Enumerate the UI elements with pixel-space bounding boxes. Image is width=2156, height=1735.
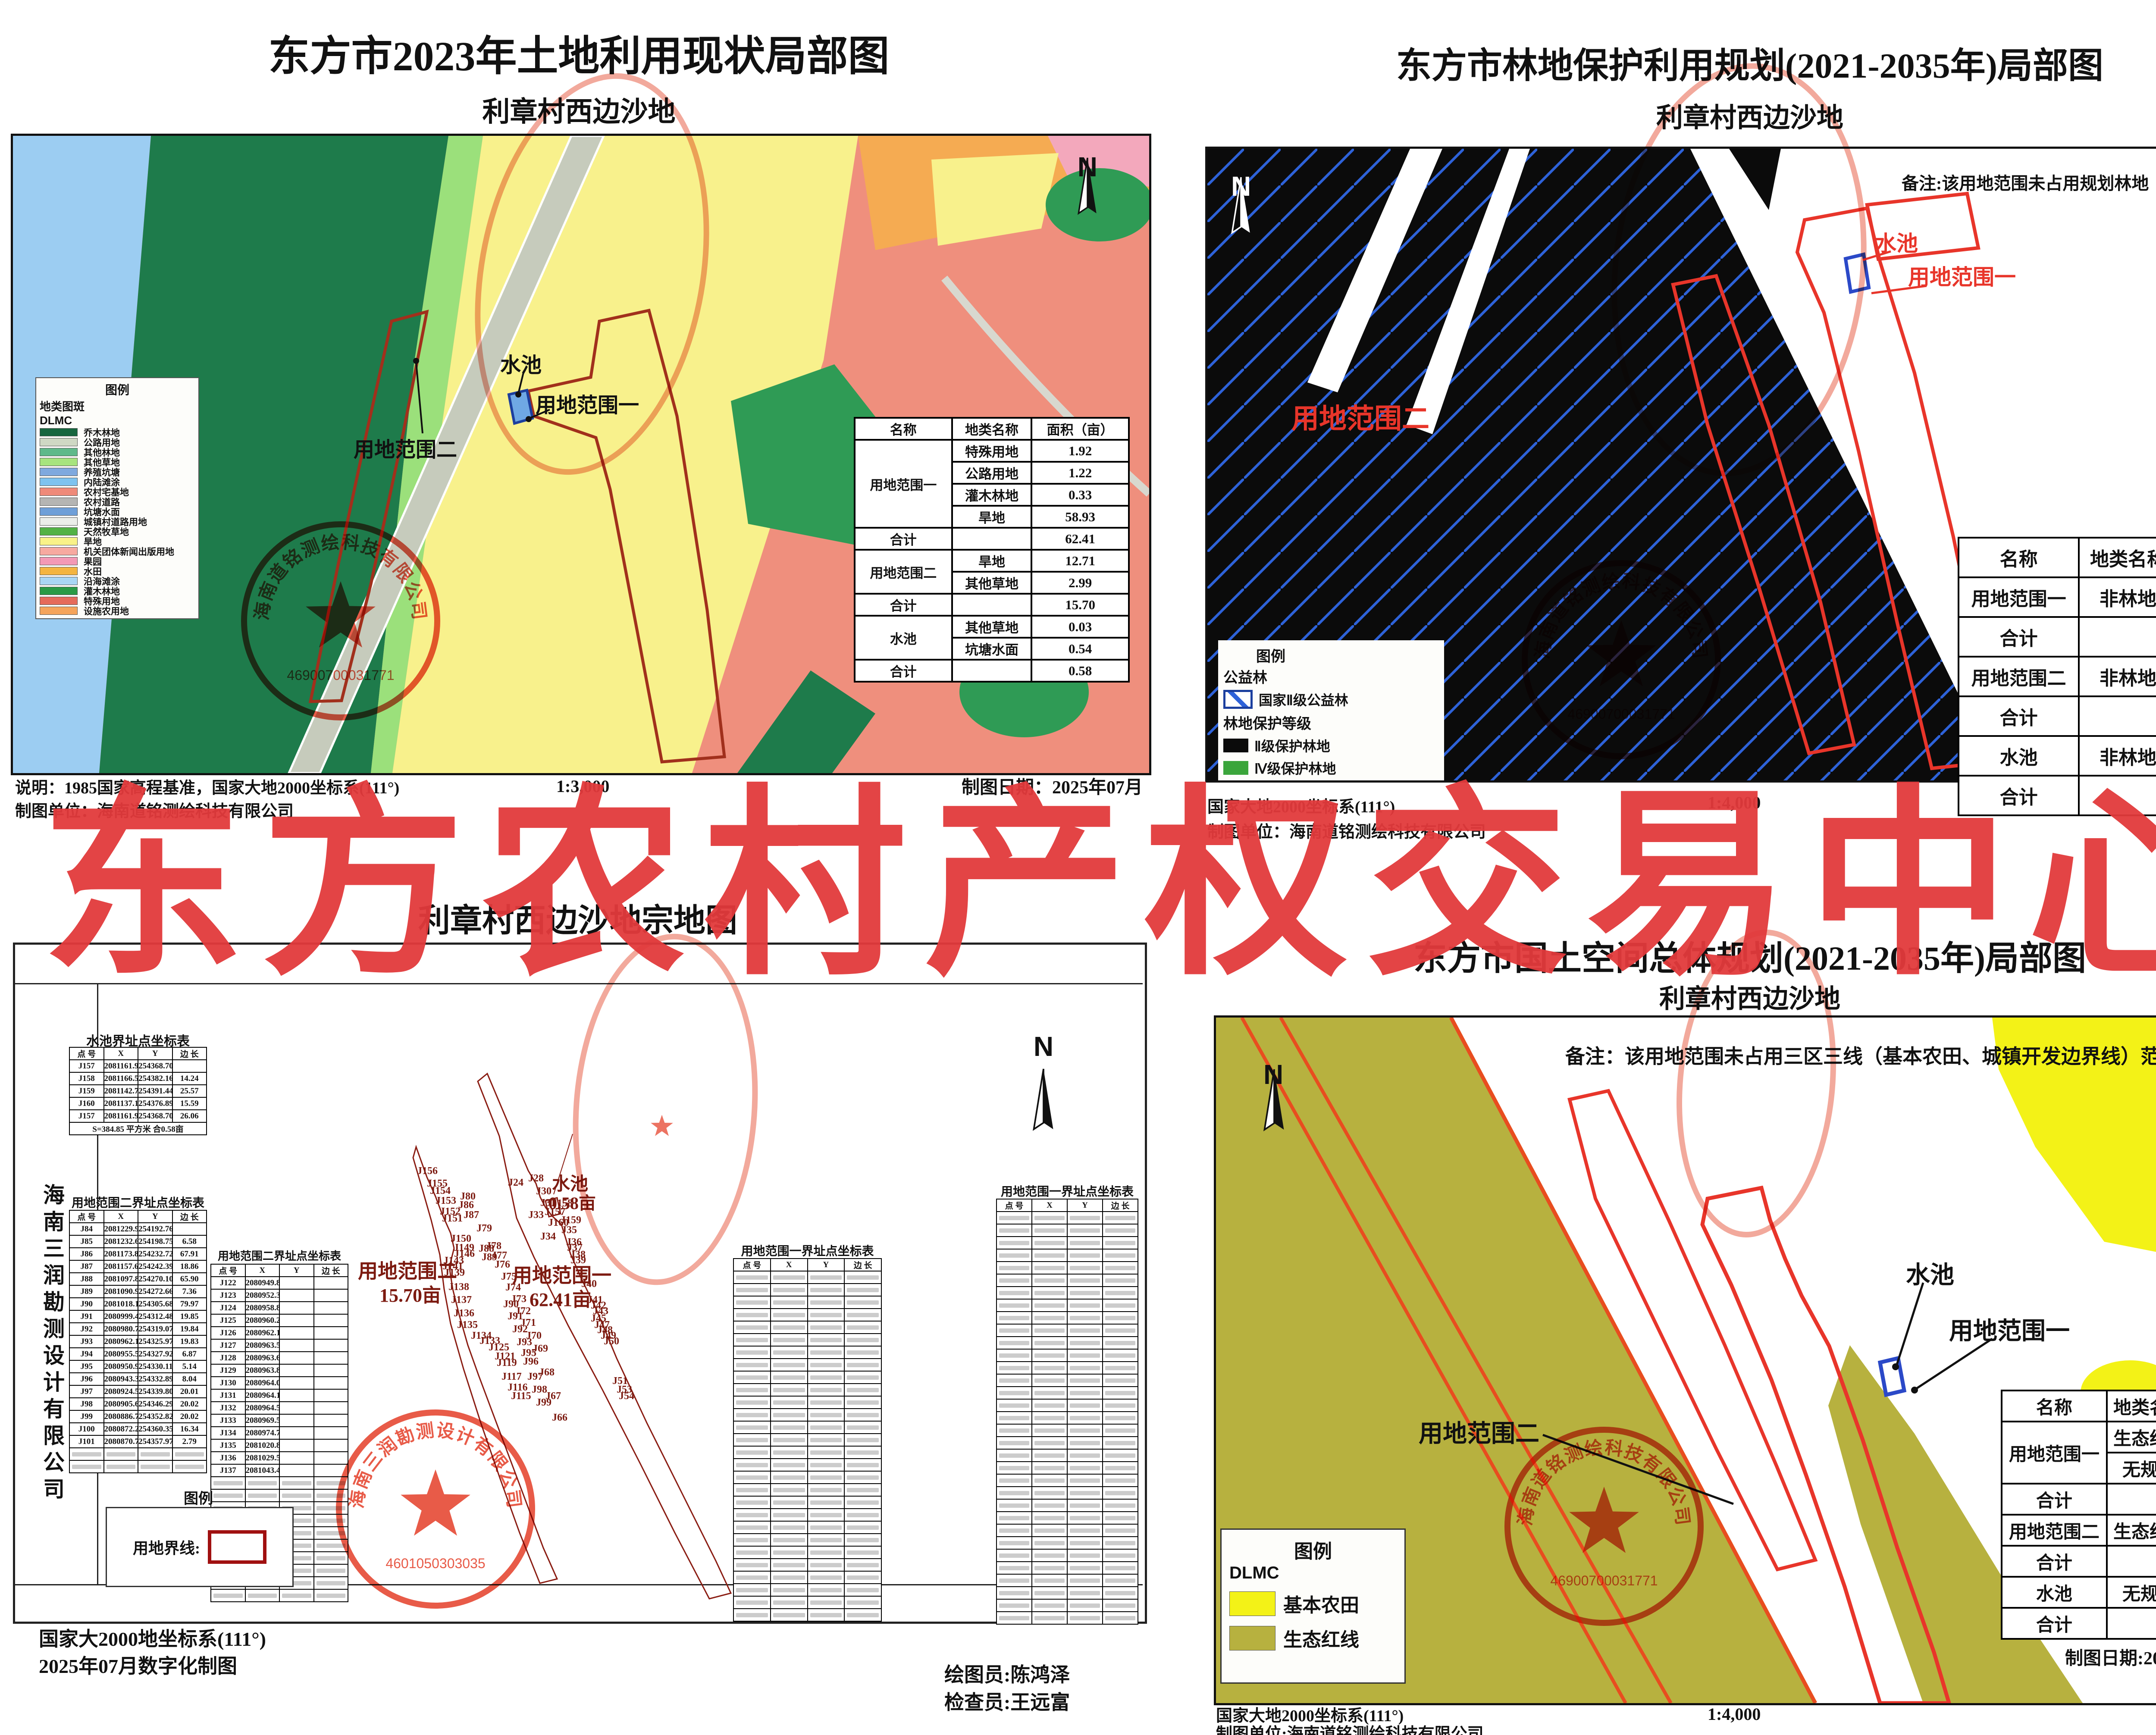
table-row: J982080905.65254346.2920.02 bbox=[69, 1398, 207, 1410]
legend-group-gongyilin: 公益林 bbox=[1223, 666, 1439, 687]
stamp-number: 46900700031771 bbox=[1567, 706, 1675, 722]
cell bbox=[997, 1224, 1032, 1237]
q4-legend: 图例 DLMC 基本农田 生态红线 bbox=[1220, 1528, 1406, 1684]
cell bbox=[844, 1459, 881, 1471]
q1-area-table-wrap: 名称地类名称面积（亩）用地范围一特殊用地1.92公路用地1.22灌木林地0.33… bbox=[854, 417, 1130, 683]
table-row: J972080924.59254339.8020.01 bbox=[69, 1385, 207, 1398]
daoming-company-stamp: 海南道铭测绘科技有限公司 46900700031771 bbox=[1503, 1425, 1705, 1628]
cell: J134 bbox=[211, 1427, 245, 1439]
cell bbox=[1032, 1524, 1067, 1537]
legend-item: 机关团体新闻出版用地 bbox=[40, 546, 195, 556]
legend-title: 图例 bbox=[1223, 645, 1318, 666]
cell: 254376.89 bbox=[138, 1097, 172, 1110]
table-row bbox=[733, 1484, 881, 1496]
cell bbox=[733, 1371, 771, 1384]
cell bbox=[808, 1409, 845, 1421]
cell bbox=[733, 1559, 771, 1571]
cell: J100 bbox=[69, 1423, 104, 1435]
daoming-company-stamp: 海南道铭测绘科技有限公司 46900700031771 bbox=[239, 520, 442, 722]
cell bbox=[1032, 1312, 1067, 1324]
cell: J95 bbox=[69, 1360, 104, 1373]
cell bbox=[1032, 1262, 1067, 1274]
table-row: J1572081161.91254368.70 bbox=[69, 1060, 207, 1072]
cell bbox=[771, 1321, 808, 1334]
legend-item: 天然牧草地 bbox=[40, 526, 195, 536]
table-row: J852081232.62254198.756.58 bbox=[69, 1235, 207, 1248]
vertex-label: J92 bbox=[512, 1324, 528, 1335]
cell bbox=[1103, 1549, 1138, 1562]
vertex-label: J98 bbox=[532, 1384, 547, 1396]
cell: J98 bbox=[69, 1398, 104, 1410]
color-swatch bbox=[40, 557, 78, 565]
cell: J132 bbox=[211, 1402, 245, 1414]
cell bbox=[1103, 1299, 1138, 1312]
table-row bbox=[997, 1524, 1138, 1537]
col-header: 点 号 bbox=[211, 1264, 245, 1277]
cell bbox=[1067, 1312, 1103, 1324]
table-row: J1012080870.78254357.972.79 bbox=[69, 1435, 207, 1448]
table-row: J942080955.57254327.926.87 bbox=[69, 1348, 207, 1360]
cell: J122 bbox=[211, 1277, 245, 1289]
cell bbox=[844, 1384, 881, 1396]
cell bbox=[808, 1359, 845, 1371]
q1-legend: 图例 地类图斑 DLMC 乔木林地 公路用地 其他林地 其他草地 养殖坑塘 内陆… bbox=[35, 377, 199, 619]
cell bbox=[1103, 1437, 1138, 1449]
cell bbox=[733, 1584, 771, 1596]
vertex-label: J69 bbox=[533, 1343, 548, 1355]
cell: 2080969.52 bbox=[245, 1414, 280, 1427]
cell: 254270.10 bbox=[138, 1273, 172, 1285]
q2-scope1-label: 用地范围一 bbox=[1908, 260, 2016, 291]
q2-title: 东方市林地保护利用规划(2021-2035年)局部图 bbox=[1186, 37, 2156, 88]
cell: J94 bbox=[69, 1348, 104, 1360]
col-header: Y bbox=[138, 1210, 172, 1223]
cell bbox=[808, 1271, 845, 1284]
cell bbox=[1103, 1337, 1138, 1349]
cell bbox=[1103, 1287, 1138, 1299]
q4-north-arrow: N bbox=[1263, 1061, 1283, 1088]
cell: 2081232.62 bbox=[104, 1235, 138, 1248]
table-row: J902081018.11254305.6879.97 bbox=[69, 1298, 207, 1310]
table-row bbox=[997, 1599, 1138, 1612]
table-row bbox=[997, 1224, 1138, 1237]
cell bbox=[1067, 1349, 1103, 1362]
cell bbox=[1067, 1449, 1103, 1462]
table-row: 合计15.7 bbox=[2002, 1546, 2156, 1577]
col-header: X bbox=[1032, 1199, 1067, 1212]
cell bbox=[1032, 1512, 1067, 1524]
table-row bbox=[733, 1396, 881, 1409]
table-row bbox=[733, 1384, 881, 1396]
cell bbox=[997, 1212, 1032, 1224]
table-row bbox=[997, 1474, 1138, 1487]
col-header: 边 长 bbox=[172, 1047, 207, 1060]
cell bbox=[1032, 1362, 1067, 1374]
north-arrow-icon bbox=[1231, 172, 1251, 241]
cell: J91 bbox=[69, 1310, 104, 1323]
cell: 5.14 bbox=[172, 1360, 207, 1373]
cell: 2080886.73 bbox=[104, 1410, 138, 1423]
cell bbox=[1103, 1412, 1138, 1424]
col-header: X bbox=[771, 1259, 808, 1271]
table-row bbox=[733, 1409, 881, 1421]
cell bbox=[771, 1359, 808, 1371]
vertex-label: J135 bbox=[457, 1319, 478, 1331]
table-row bbox=[733, 1296, 881, 1309]
cell: J129 bbox=[211, 1364, 245, 1377]
table-row bbox=[997, 1249, 1138, 1262]
cell: J99 bbox=[69, 1410, 104, 1423]
cell: 2081161.91 bbox=[104, 1110, 138, 1122]
cell: 2080964.06 bbox=[245, 1377, 280, 1389]
cell bbox=[997, 1387, 1032, 1399]
scope1a-table-wrap: 点 号XY边 长 bbox=[733, 1258, 882, 1622]
cell bbox=[771, 1471, 808, 1484]
cell bbox=[808, 1509, 845, 1521]
cell: 12.71 bbox=[1031, 550, 1129, 572]
col-header: X bbox=[104, 1047, 138, 1060]
cell: 254232.72 bbox=[138, 1248, 172, 1260]
black-swatch bbox=[1223, 739, 1248, 752]
cell bbox=[771, 1484, 808, 1496]
table-row: 合计0.58 bbox=[2002, 1608, 2156, 1639]
cell bbox=[1067, 1374, 1103, 1387]
cell bbox=[1067, 1237, 1103, 1249]
cell bbox=[844, 1446, 881, 1459]
cell bbox=[1032, 1537, 1067, 1549]
table-row bbox=[997, 1412, 1138, 1424]
cell: 254332.89 bbox=[138, 1373, 172, 1385]
cell bbox=[1032, 1574, 1067, 1587]
table-row bbox=[733, 1271, 881, 1284]
table-row: 合计0.58 bbox=[855, 660, 1129, 682]
cell bbox=[808, 1434, 845, 1446]
cell bbox=[771, 1384, 808, 1396]
cell bbox=[1103, 1424, 1138, 1437]
cell bbox=[1103, 1362, 1138, 1374]
table-row bbox=[997, 1449, 1138, 1462]
cell: 无规划 bbox=[2107, 1453, 2156, 1484]
cell bbox=[844, 1346, 881, 1359]
cell bbox=[733, 1521, 771, 1534]
cell: 26.06 bbox=[172, 1110, 207, 1122]
cell bbox=[1103, 1562, 1138, 1574]
col-header: 点 号 bbox=[69, 1210, 104, 1223]
cell: 2081043.43 bbox=[245, 1464, 280, 1477]
stamp-number: 46900700031771 bbox=[1550, 1573, 1658, 1588]
cell: J123 bbox=[211, 1289, 245, 1302]
cell: 254346.29 bbox=[138, 1398, 172, 1410]
cell bbox=[2107, 1608, 2156, 1639]
cell: J96 bbox=[69, 1373, 104, 1385]
cell bbox=[733, 1346, 771, 1359]
cell bbox=[952, 594, 1032, 616]
cell: 水池 bbox=[2002, 1577, 2107, 1608]
table-row bbox=[733, 1546, 881, 1559]
vertex-label: J87 bbox=[464, 1209, 479, 1221]
cell bbox=[997, 1249, 1032, 1262]
cell: J90 bbox=[69, 1298, 104, 1310]
north-arrow-icon bbox=[1033, 1060, 1054, 1142]
cell: 2080964.13 bbox=[245, 1389, 280, 1402]
cell: J87 bbox=[69, 1260, 104, 1273]
color-swatch bbox=[40, 438, 78, 446]
cell bbox=[844, 1509, 881, 1521]
cell: 15.59 bbox=[172, 1097, 207, 1110]
table-row bbox=[997, 1287, 1138, 1299]
cell: 0.03 bbox=[1031, 616, 1129, 638]
cell: 公路用地 bbox=[952, 462, 1032, 484]
cell: 2081157.63 bbox=[104, 1260, 138, 1273]
cell bbox=[1067, 1324, 1103, 1337]
cell: 254272.66 bbox=[138, 1285, 172, 1298]
cell bbox=[1032, 1387, 1067, 1399]
cell bbox=[808, 1296, 845, 1309]
cell bbox=[808, 1584, 845, 1596]
cell bbox=[771, 1559, 808, 1571]
cell bbox=[1067, 1612, 1103, 1624]
cell bbox=[1067, 1537, 1103, 1549]
table-row: J992080886.73254352.8220.02 bbox=[69, 1410, 207, 1423]
scope1b-table-wrap: 点 号XY边 长 bbox=[996, 1199, 1138, 1625]
cell: 62.41 bbox=[1031, 528, 1129, 550]
table-row bbox=[733, 1596, 881, 1609]
cell bbox=[1067, 1499, 1103, 1512]
cell bbox=[997, 1299, 1032, 1312]
scope1a-table-title: 用地范围一界址点坐标表 bbox=[733, 1242, 882, 1259]
cell bbox=[733, 1609, 771, 1621]
scanned-land-maps-sheet: 东方市2023年土地利用现状局部图 利章村西边沙地 bbox=[0, 0, 2156, 1735]
vertex-label: J156 bbox=[417, 1165, 438, 1177]
cell bbox=[1103, 1587, 1138, 1599]
table-row bbox=[733, 1509, 881, 1521]
table-row bbox=[733, 1471, 881, 1484]
table-row bbox=[733, 1446, 881, 1459]
table-row bbox=[997, 1387, 1138, 1399]
cell bbox=[808, 1609, 845, 1621]
vertex-label: J99 bbox=[536, 1397, 552, 1409]
cell bbox=[172, 1223, 207, 1235]
table-row bbox=[733, 1584, 881, 1596]
color-swatch bbox=[40, 468, 78, 476]
cell: 合计 bbox=[1959, 696, 2079, 736]
legend-title: 图例 bbox=[1229, 1536, 1397, 1563]
cell bbox=[844, 1396, 881, 1409]
table-row: J842081229.90254192.76 bbox=[69, 1223, 207, 1235]
legend-item: 国家Ⅱ级公益林 bbox=[1259, 689, 1348, 709]
cell: 2081161.91 bbox=[104, 1060, 138, 1072]
cell bbox=[733, 1459, 771, 1471]
cell: 20.01 bbox=[172, 1385, 207, 1398]
cell: 254319.07 bbox=[138, 1323, 172, 1335]
cell bbox=[1067, 1387, 1103, 1399]
north-letter: N bbox=[1034, 1033, 1053, 1060]
cell bbox=[1103, 1537, 1138, 1549]
cell: J125 bbox=[211, 1314, 245, 1327]
cell bbox=[733, 1384, 771, 1396]
table-row bbox=[69, 1460, 207, 1473]
cell: 254391.44 bbox=[138, 1085, 172, 1097]
table-row: 用地范围二非林地15.7 bbox=[1959, 657, 2156, 696]
table-row bbox=[733, 1496, 881, 1509]
cell: 2080962.16 bbox=[104, 1335, 138, 1348]
table-row bbox=[997, 1562, 1138, 1574]
cell bbox=[808, 1459, 845, 1471]
color-swatch bbox=[40, 478, 78, 486]
vertex-label: J136 bbox=[454, 1308, 474, 1319]
table-row: 合计62.41 bbox=[1959, 617, 2156, 657]
cell bbox=[771, 1509, 808, 1521]
col-header: 地类名称 bbox=[2079, 538, 2156, 577]
table-row bbox=[733, 1559, 881, 1571]
cell bbox=[2079, 696, 2156, 736]
cell bbox=[808, 1559, 845, 1571]
cell: 合计 bbox=[2002, 1484, 2107, 1515]
cell bbox=[844, 1296, 881, 1309]
legend-item: 生态红线 bbox=[1229, 1624, 1397, 1652]
cell bbox=[1067, 1249, 1103, 1262]
scope1b-coord-table: 点 号XY边 长 bbox=[996, 1199, 1138, 1625]
cell bbox=[1103, 1349, 1138, 1362]
cell bbox=[1032, 1462, 1067, 1474]
col-header: 名称 bbox=[1959, 538, 2079, 577]
cell bbox=[1032, 1249, 1067, 1262]
vertex-label: J33 bbox=[528, 1209, 544, 1221]
q4-footer-unit: 制图单位:海南道铭测绘科技有限公司 bbox=[1216, 1720, 1484, 1735]
cell: J84 bbox=[69, 1223, 104, 1235]
color-swatch bbox=[40, 527, 78, 536]
color-swatch bbox=[1229, 1626, 1275, 1650]
cell bbox=[1067, 1299, 1103, 1312]
cell: 用地范围一 bbox=[855, 440, 952, 528]
scope1-area-value: 62.41亩 bbox=[530, 1284, 591, 1312]
color-swatch bbox=[40, 577, 78, 585]
vertex-label: J79 bbox=[476, 1223, 492, 1234]
cell bbox=[1067, 1362, 1103, 1374]
cell bbox=[1103, 1387, 1138, 1399]
cell bbox=[771, 1596, 808, 1609]
cell bbox=[1032, 1562, 1067, 1574]
cell bbox=[1067, 1587, 1103, 1599]
cell: 254242.39 bbox=[138, 1260, 172, 1273]
cell bbox=[844, 1596, 881, 1609]
cell: 2080950.92 bbox=[104, 1360, 138, 1373]
col-header: Y bbox=[138, 1047, 172, 1060]
cell bbox=[808, 1484, 845, 1496]
cell bbox=[1103, 1399, 1138, 1412]
cell: 非林地 bbox=[2079, 736, 2156, 776]
cell bbox=[997, 1599, 1032, 1612]
table-row bbox=[733, 1571, 881, 1584]
cell: 254305.68 bbox=[138, 1298, 172, 1310]
cell bbox=[1032, 1587, 1067, 1599]
cell: J158 bbox=[69, 1072, 104, 1085]
vertex-label: J34 bbox=[540, 1231, 556, 1243]
cell bbox=[997, 1324, 1032, 1337]
vertex-label: J97 bbox=[527, 1371, 543, 1383]
cell bbox=[733, 1359, 771, 1371]
cell bbox=[1103, 1237, 1138, 1249]
cell bbox=[1032, 1437, 1067, 1449]
cell bbox=[997, 1574, 1032, 1587]
cell bbox=[997, 1399, 1032, 1412]
woods-patch bbox=[1046, 168, 1149, 241]
cell: 2080963.84 bbox=[245, 1364, 280, 1377]
cell: 2080958.80 bbox=[245, 1302, 280, 1314]
cell bbox=[733, 1284, 771, 1296]
cell bbox=[172, 1060, 207, 1072]
col-header: 点 号 bbox=[69, 1047, 104, 1060]
table-row: 水池其他草地0.03 bbox=[855, 616, 1129, 638]
cell bbox=[1067, 1262, 1103, 1274]
cell bbox=[1067, 1462, 1103, 1474]
cell bbox=[1032, 1324, 1067, 1337]
cell: 20.02 bbox=[172, 1398, 207, 1410]
cell bbox=[844, 1284, 881, 1296]
cell: 6.58 bbox=[172, 1235, 207, 1248]
table-row: J1582081166.58254382.1614.24 bbox=[69, 1072, 207, 1085]
cell: 254360.35 bbox=[138, 1423, 172, 1435]
table-row bbox=[997, 1262, 1138, 1274]
table-row: 合计15.70 bbox=[855, 594, 1129, 616]
cell bbox=[1103, 1487, 1138, 1499]
cell: 2080952.31 bbox=[245, 1289, 280, 1302]
cell: 2080955.57 bbox=[104, 1348, 138, 1360]
north-arrow-icon bbox=[1078, 153, 1097, 222]
cell bbox=[844, 1421, 881, 1434]
cell bbox=[771, 1459, 808, 1471]
vertex-label: J54 bbox=[619, 1391, 634, 1402]
cell: 254327.92 bbox=[138, 1348, 172, 1360]
cell bbox=[1067, 1412, 1103, 1424]
cell bbox=[997, 1362, 1032, 1374]
cell bbox=[771, 1521, 808, 1534]
cell bbox=[997, 1537, 1032, 1549]
table-row: J872081157.63254242.3918.86 bbox=[69, 1260, 207, 1273]
cell bbox=[808, 1396, 845, 1409]
cell: 特殊用地 bbox=[952, 440, 1032, 462]
cell: 67.91 bbox=[172, 1248, 207, 1260]
cell bbox=[844, 1359, 881, 1371]
cell: 其他草地 bbox=[952, 616, 1032, 638]
table-row bbox=[997, 1362, 1138, 1374]
cell: 2081166.58 bbox=[104, 1072, 138, 1085]
cell bbox=[1103, 1462, 1138, 1474]
cell: 2080960.21 bbox=[245, 1314, 280, 1327]
cell: 2081173.81 bbox=[104, 1248, 138, 1260]
cell: J133 bbox=[211, 1414, 245, 1427]
cell: 非林地 bbox=[2079, 577, 2156, 617]
cell: 2080963.67 bbox=[245, 1352, 280, 1364]
table-row bbox=[997, 1299, 1138, 1312]
table-row: J962080943.38254332.898.04 bbox=[69, 1373, 207, 1385]
cell bbox=[1067, 1487, 1103, 1499]
cell: 254352.82 bbox=[138, 1410, 172, 1423]
cell bbox=[1032, 1274, 1067, 1287]
cell bbox=[1103, 1274, 1138, 1287]
cell bbox=[2107, 1546, 2156, 1577]
col-header: 地类名称 bbox=[2107, 1391, 2156, 1422]
cell bbox=[1103, 1374, 1138, 1387]
q3-legend-title: 图例 bbox=[106, 1487, 291, 1508]
cell bbox=[245, 1589, 280, 1602]
cell: J131 bbox=[211, 1389, 245, 1402]
cell: J157 bbox=[69, 1110, 104, 1122]
cell: 2081029.59 bbox=[245, 1452, 280, 1464]
cell: 19.84 bbox=[172, 1323, 207, 1335]
cell bbox=[844, 1409, 881, 1421]
color-swatch bbox=[40, 587, 78, 595]
